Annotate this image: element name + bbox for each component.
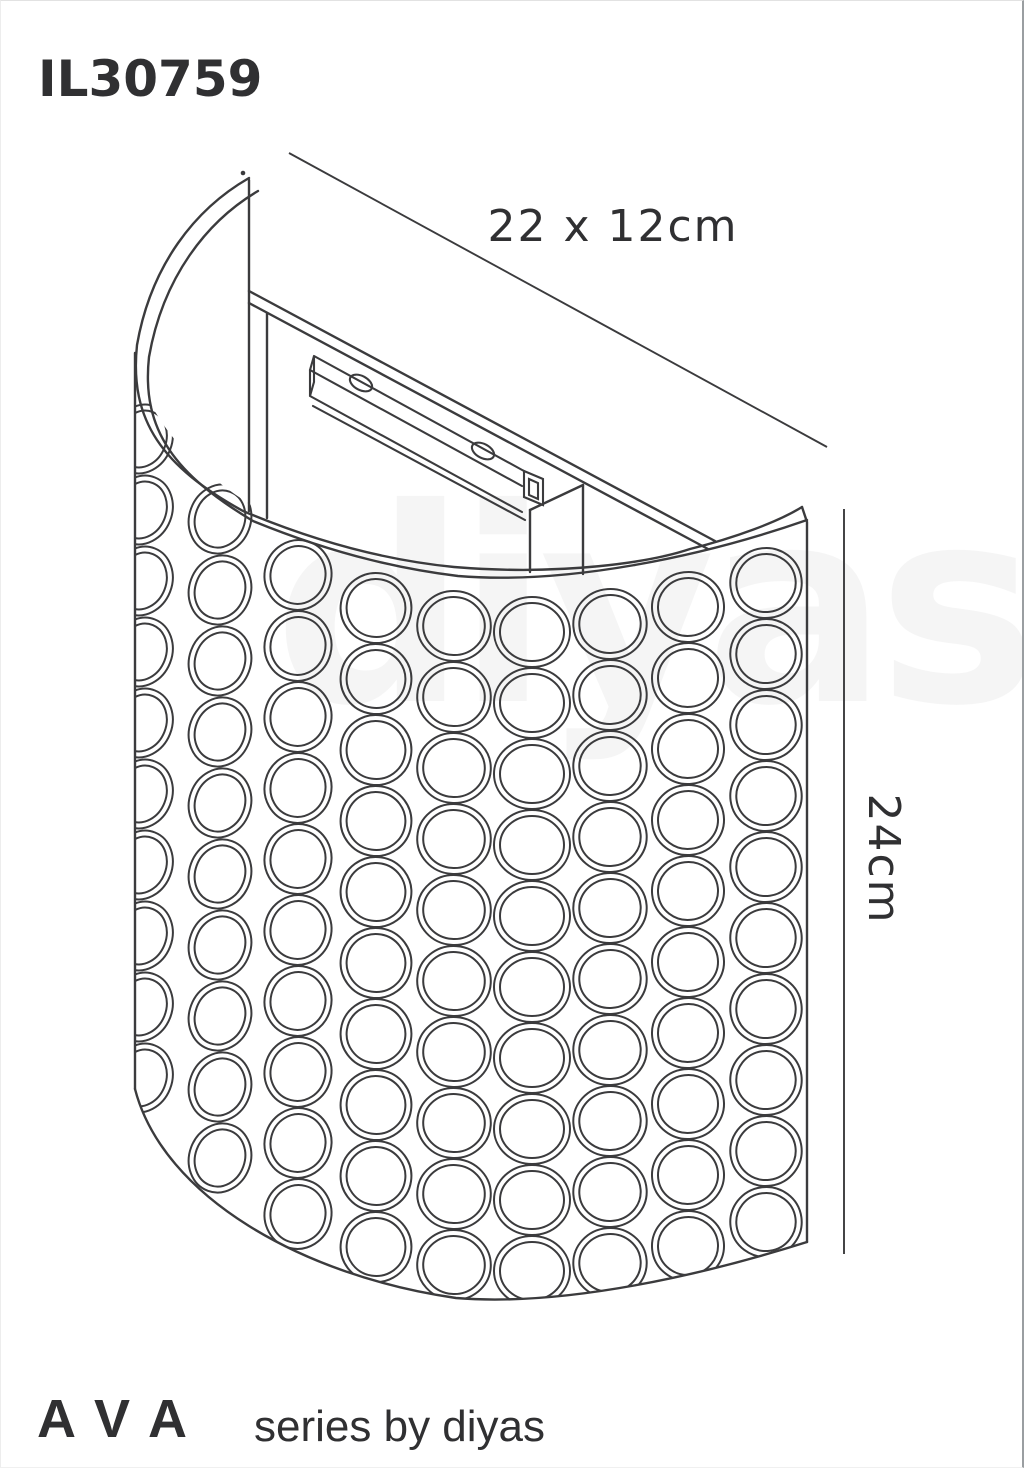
crystal-ring — [257, 1172, 339, 1256]
crystal-ring — [415, 1228, 493, 1303]
crystal-ring — [726, 827, 806, 906]
crystal-ring — [179, 688, 261, 775]
crystal-ring — [571, 1083, 649, 1158]
crystal-ring — [571, 1154, 649, 1229]
crystal-ring — [494, 881, 570, 951]
crystal-ring — [257, 888, 339, 972]
crystal-ring — [179, 546, 261, 633]
crystal-ring — [101, 892, 183, 979]
crystal-ring — [101, 679, 183, 766]
crystal-ring — [179, 972, 261, 1059]
crystal-ring — [415, 1157, 493, 1232]
product-code: IL30759 — [38, 50, 262, 108]
crystal-ring — [257, 817, 339, 901]
crystal-ring — [415, 802, 493, 877]
crystal-ring — [648, 1065, 728, 1143]
crystal-ring — [648, 923, 728, 1001]
crystal-ring — [179, 1043, 261, 1130]
crystal-ring — [571, 799, 649, 874]
crystal-ring — [726, 1111, 806, 1190]
crystal-ring — [494, 952, 570, 1022]
crystal-ring — [179, 759, 261, 846]
crystal-ring — [101, 750, 183, 837]
diyas-watermark: diyas — [274, 450, 1024, 765]
crystal-ring — [494, 1165, 570, 1235]
crystal-ring — [726, 969, 806, 1048]
crystal-ring — [415, 944, 493, 1019]
crystal-ring — [726, 756, 806, 835]
crystal-ring — [494, 810, 570, 880]
bracket-left-end-cap — [310, 356, 314, 396]
crystal-ring — [336, 994, 416, 1074]
crystal-ring — [571, 1012, 649, 1087]
dimension-tick-dot — [241, 171, 246, 176]
crystal-ring — [336, 852, 416, 932]
crystal-ring — [415, 873, 493, 948]
crystal-ring — [571, 870, 649, 945]
crystal-ring — [571, 941, 649, 1016]
crystal-ring — [336, 923, 416, 1003]
crystal-ring — [648, 994, 728, 1072]
top-dimension — [241, 153, 827, 447]
crystal-ring — [179, 1114, 261, 1201]
width-depth-dimension-label: 22 x 12cm — [487, 201, 738, 252]
product-diagram-page: diyas IL30759 22 x 12cm 24cm — [0, 0, 1024, 1468]
crystal-ring — [257, 1101, 339, 1185]
crystal-ring — [415, 1015, 493, 1090]
crystal-ring — [648, 852, 728, 930]
crystal-ring — [336, 1065, 416, 1145]
crystal-ring — [336, 1207, 416, 1287]
crystal-ring — [179, 617, 261, 704]
crystal-ring — [336, 1136, 416, 1216]
crystal-ring — [101, 537, 183, 624]
crystal-ring — [257, 959, 339, 1043]
crystal-ring — [726, 1182, 806, 1261]
crystal-ring — [726, 898, 806, 977]
height-dimension-label: 24cm — [858, 793, 909, 924]
crystal-ring — [648, 781, 728, 859]
crystal-ring — [101, 466, 183, 553]
screw-hole-left — [347, 371, 375, 395]
brand-logo: AVA — [37, 1389, 209, 1449]
crystal-ring — [336, 781, 416, 861]
crystal-ring — [648, 1207, 728, 1285]
crystal-ring — [726, 1040, 806, 1119]
crystal-ring — [179, 901, 261, 988]
crystal-ring — [415, 1086, 493, 1161]
crystal-ring — [494, 1094, 570, 1164]
crystal-ring — [257, 1030, 339, 1114]
crystal-ring — [494, 1023, 570, 1093]
crystal-ring — [101, 963, 183, 1050]
crystal-ring — [648, 1136, 728, 1214]
series-caption: series by diyas — [254, 1402, 545, 1451]
crystal-ring — [101, 821, 183, 908]
crystal-ring — [101, 608, 183, 695]
crystal-ring — [179, 830, 261, 917]
